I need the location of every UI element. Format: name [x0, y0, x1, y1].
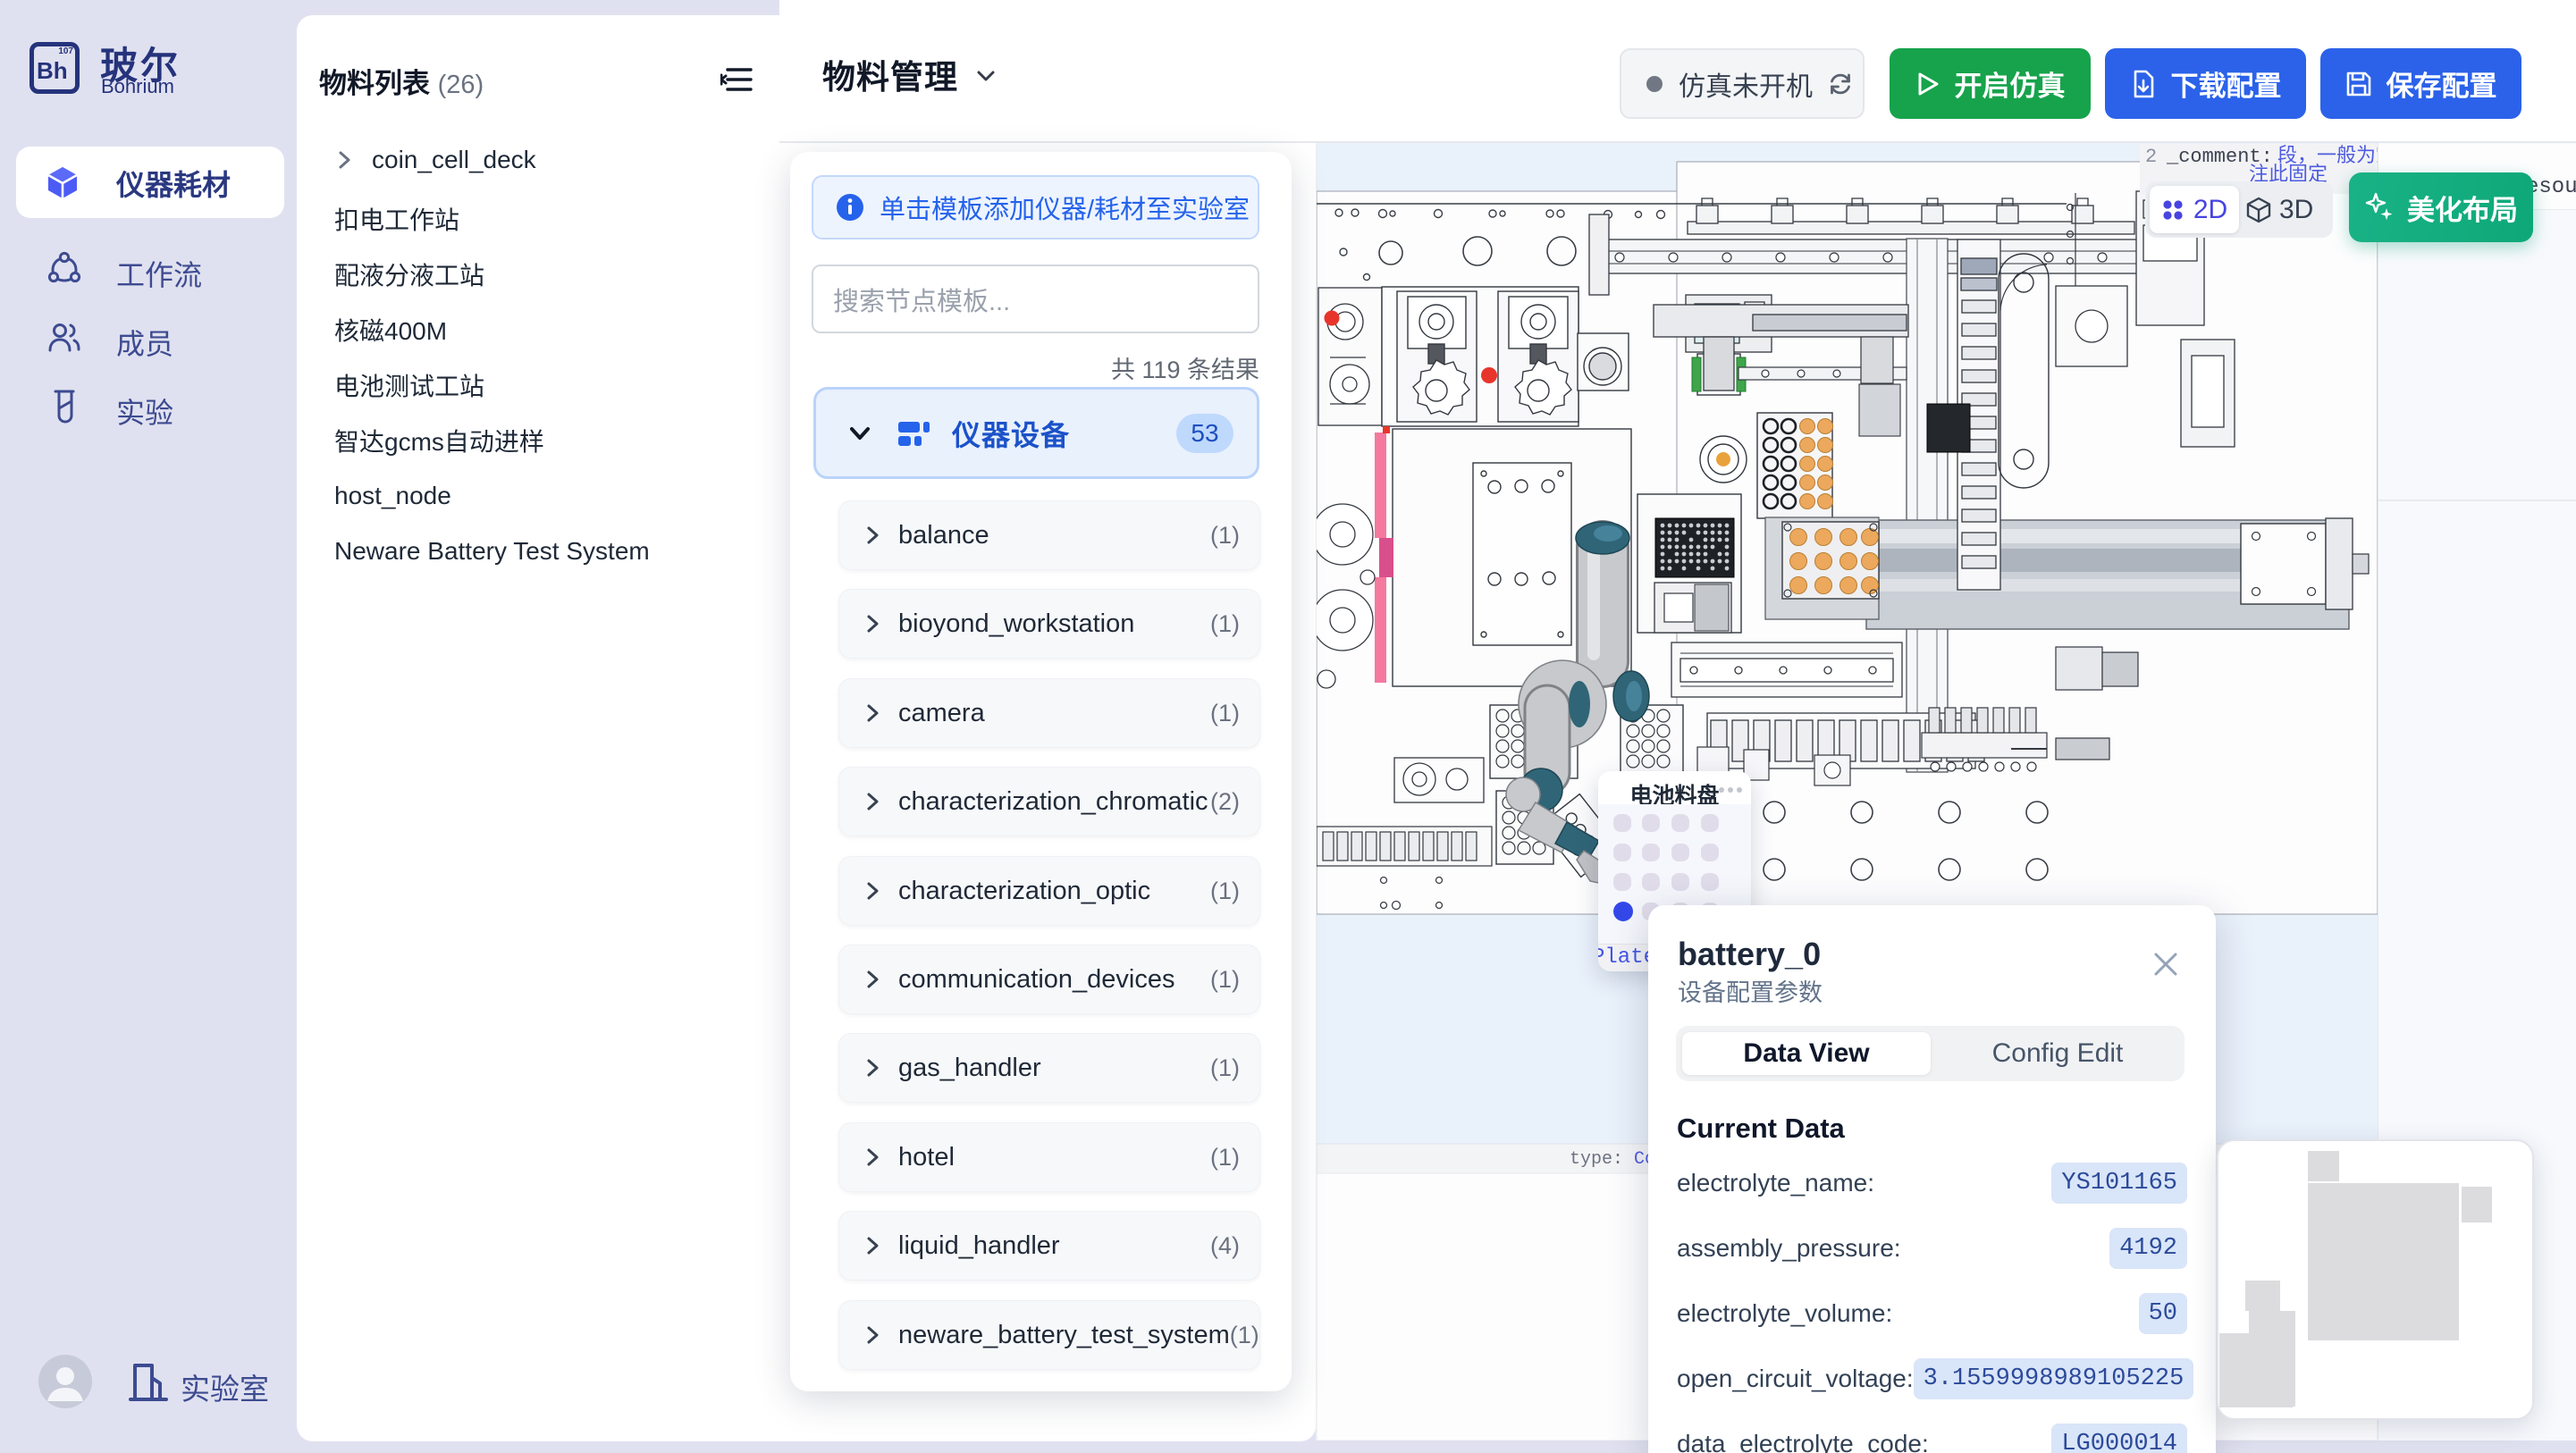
svg-text:2: 2 — [2145, 146, 2157, 168]
